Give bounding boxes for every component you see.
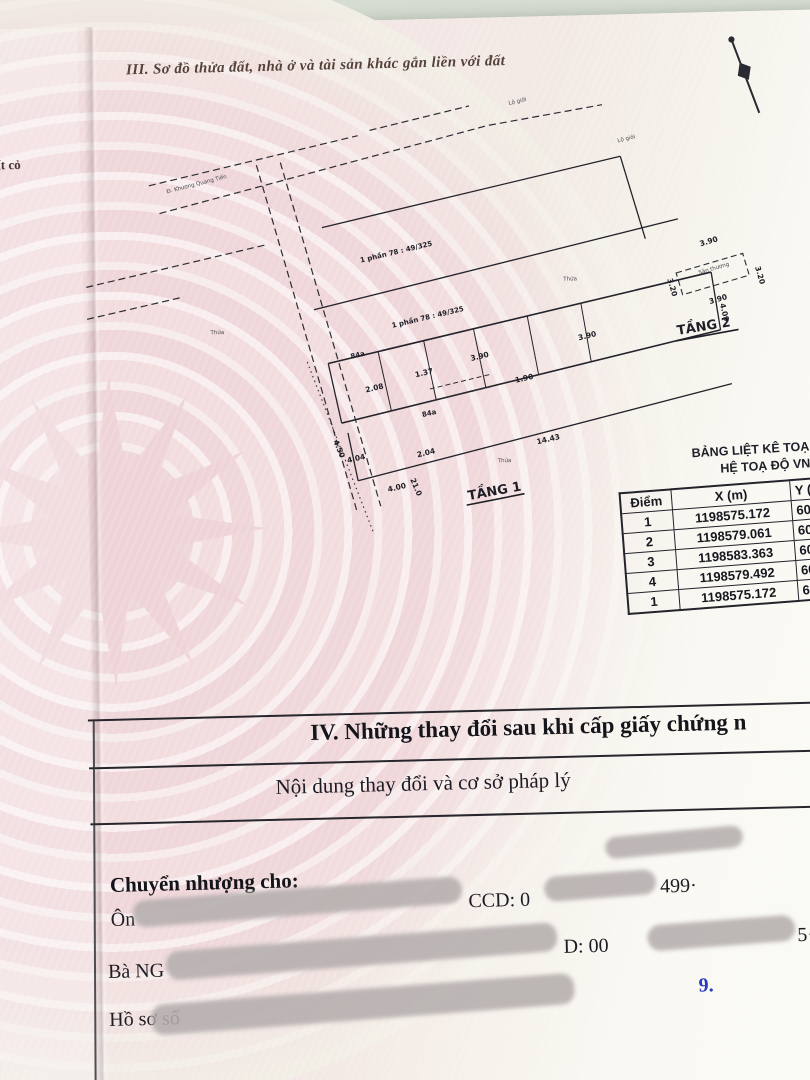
ba-prefix: Bà NG: [108, 960, 165, 984]
svg-text:Đ. Khương Quang Tiến: Đ. Khương Quang Tiến: [166, 173, 228, 195]
svg-text:1 phần 78 : 49/325: 1 phần 78 : 49/325: [359, 240, 433, 265]
svg-text:21.0: 21.0: [408, 477, 424, 498]
parcel-boundaries: [310, 154, 734, 482]
certificate-page: III. Sơ đồ thửa đất, nhà ở và tài sản kh…: [0, 8, 810, 1080]
svg-text:3.90: 3.90: [577, 329, 597, 342]
ba-ccd-fragment: D: 00: [563, 935, 609, 959]
hoso-blue-fragment: 9.: [698, 974, 714, 997]
ba-tail-fragment: 5·: [797, 924, 810, 947]
svg-text:Lộ giới: Lộ giới: [617, 133, 637, 144]
svg-text:Thửa: Thửa: [497, 457, 512, 464]
svg-text:1 phần 78 : 49/325: 1 phần 78 : 49/325: [391, 305, 465, 330]
svg-text:84a: 84a: [421, 408, 437, 419]
coord-table: Điểm X (m) Y (m 1 1198575.172 60202 2 11…: [618, 472, 810, 615]
photo-frame: III. Sơ đồ thửa đất, nhà ở và tài sản kh…: [0, 0, 810, 1080]
ong-ccd-fragment: CCD: 0: [468, 889, 530, 914]
svg-text:3.90: 3.90: [699, 234, 719, 248]
svg-text:Lộ giới: Lộ giới: [508, 96, 528, 107]
north-arrow-icon: [729, 36, 759, 113]
svg-text:2.04: 2.04: [416, 446, 436, 459]
svg-text:2.08: 2.08: [364, 381, 384, 394]
svg-text:Thửa: Thửa: [209, 329, 224, 336]
svg-text:4.50: 4.50: [331, 439, 347, 460]
floor2-roof-box: [676, 253, 750, 295]
parcel-labels: 1 phần 78 : 49/325 1 phần 78 : 49/325 84…: [164, 91, 735, 472]
svg-text:Sân thượng: Sân thượng: [698, 261, 730, 277]
svg-text:4.04: 4.04: [346, 452, 366, 465]
svg-text:3.90: 3.90: [470, 350, 490, 363]
svg-text:84a: 84a: [350, 350, 366, 361]
ong-tail-fragment: 499·: [660, 875, 697, 899]
svg-text:1.90: 1.90: [514, 372, 534, 385]
svg-text:3.20: 3.20: [753, 265, 767, 285]
svg-text:Thửa: Thửa: [562, 275, 577, 282]
left-edge-text: ất cỏ: [0, 157, 21, 174]
svg-text:4.00: 4.00: [387, 481, 407, 494]
